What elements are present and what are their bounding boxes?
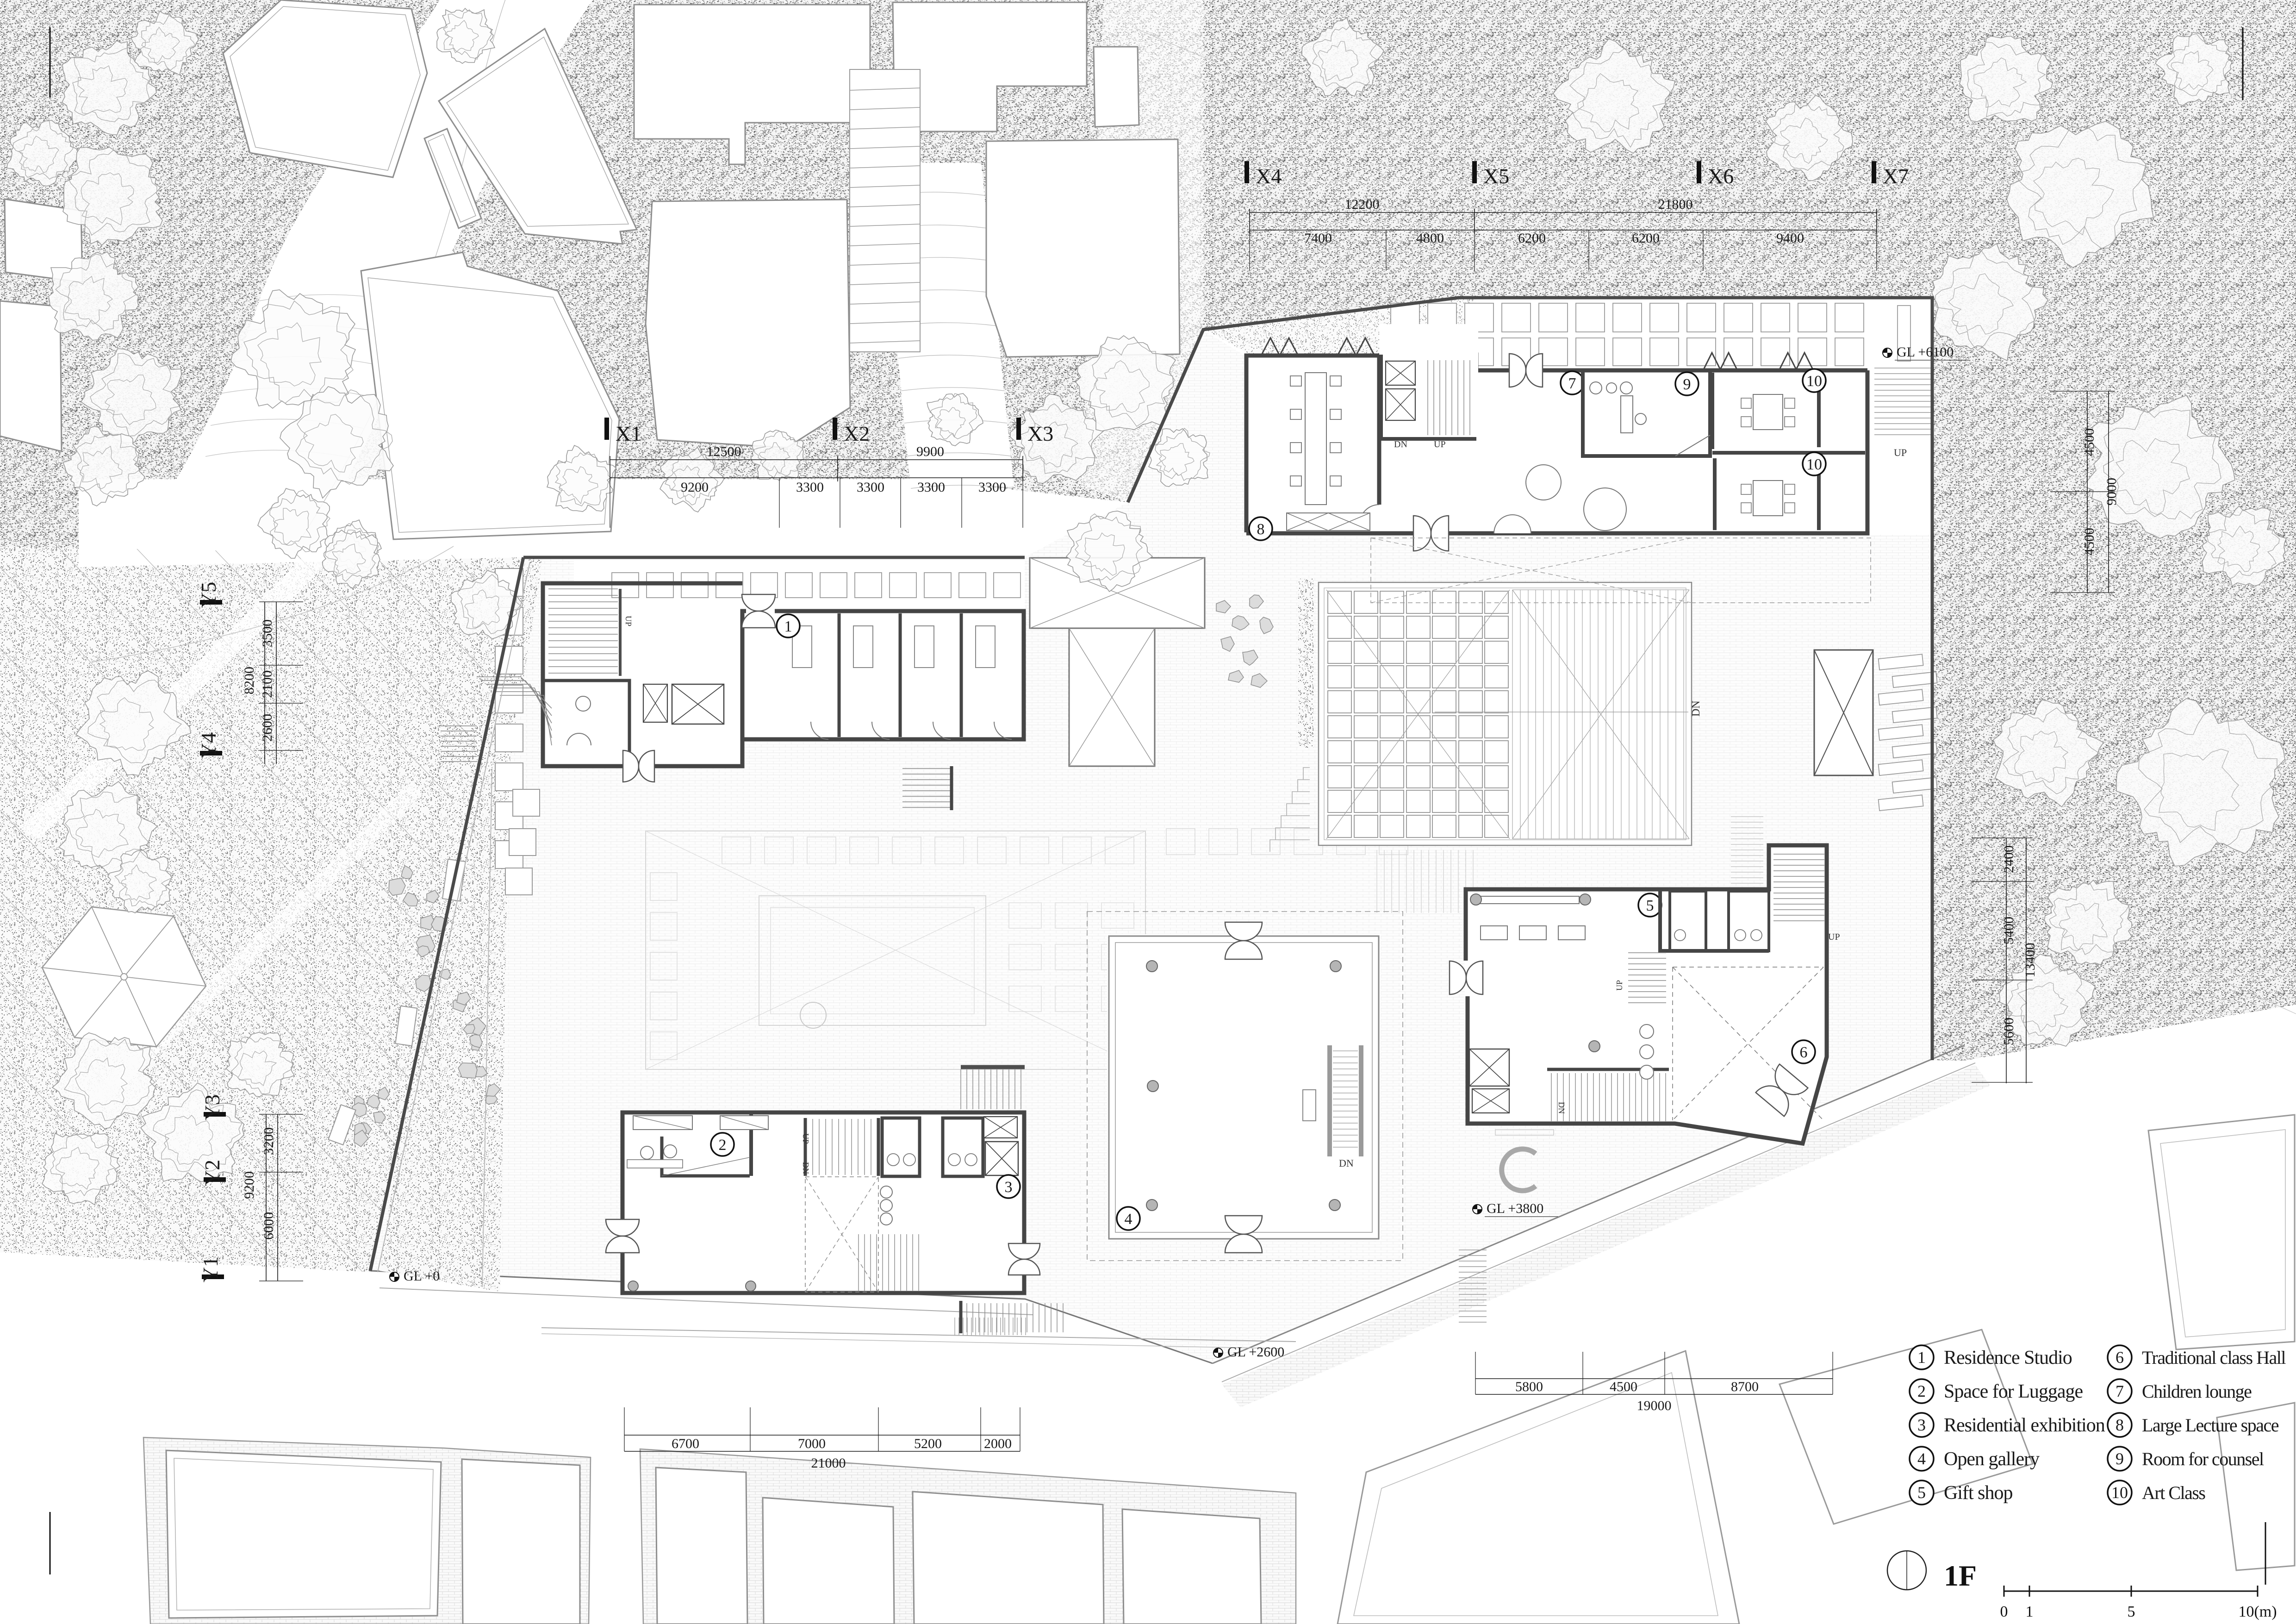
svg-text:UP: UP <box>624 616 633 626</box>
svg-text:4500: 4500 <box>2082 428 2097 456</box>
svg-text:X5: X5 <box>1483 164 1509 188</box>
svg-text:2000: 2000 <box>984 1436 1012 1451</box>
svg-text:4: 4 <box>1125 1211 1132 1228</box>
svg-text:5200: 5200 <box>914 1436 942 1451</box>
svg-text:9200: 9200 <box>681 480 709 495</box>
svg-text:6000: 6000 <box>261 1212 276 1240</box>
svg-text:8: 8 <box>2116 1416 2124 1434</box>
svg-text:Traditional class Hall: Traditional class Hall <box>2142 1347 2286 1368</box>
svg-text:UP: UP <box>1615 980 1624 991</box>
svg-text:0: 0 <box>2000 1603 2008 1620</box>
svg-text:Residence Studio: Residence Studio <box>1944 1347 2072 1368</box>
svg-text:8: 8 <box>1257 521 1265 538</box>
svg-text:1F: 1F <box>1944 1559 1977 1592</box>
svg-text:4800: 4800 <box>1416 231 1444 246</box>
svg-text:5400: 5400 <box>2001 917 2016 944</box>
svg-text:9200: 9200 <box>242 1171 257 1199</box>
svg-text:1: 1 <box>2026 1603 2034 1620</box>
svg-text:2: 2 <box>719 1137 727 1154</box>
svg-text:4500: 4500 <box>2082 528 2097 556</box>
svg-text:3300: 3300 <box>917 480 945 495</box>
svg-text:X7: X7 <box>1883 164 1909 188</box>
svg-text:UP: UP <box>1434 439 1446 450</box>
svg-text:10: 10 <box>2111 1483 2128 1502</box>
svg-text:UP: UP <box>1894 447 1907 458</box>
svg-text:9000: 9000 <box>2104 478 2119 506</box>
svg-text:3200: 3200 <box>261 1127 276 1155</box>
svg-text:DN: DN <box>1394 439 1407 450</box>
svg-text:10: 10 <box>1806 456 1822 473</box>
svg-text:Art Class: Art Class <box>2142 1482 2205 1503</box>
svg-text:6: 6 <box>1800 1044 1808 1061</box>
svg-text:4500: 4500 <box>1610 1379 1637 1394</box>
svg-text:9400: 9400 <box>1776 231 1804 246</box>
svg-text:Space for Luggage: Space for Luggage <box>1944 1381 2083 1402</box>
svg-text:3300: 3300 <box>978 480 1006 495</box>
svg-text:2100: 2100 <box>260 670 275 698</box>
svg-text:DN: DN <box>1557 1102 1566 1114</box>
svg-text:X2: X2 <box>844 422 870 445</box>
svg-text:6200: 6200 <box>1518 231 1546 246</box>
svg-text:3: 3 <box>1917 1416 1926 1434</box>
svg-text:3300: 3300 <box>857 480 884 495</box>
svg-text:5: 5 <box>1646 897 1654 914</box>
svg-text:DN: DN <box>801 1162 810 1174</box>
svg-text:12200: 12200 <box>1345 197 1380 212</box>
svg-text:21000: 21000 <box>811 1455 846 1471</box>
svg-text:6700: 6700 <box>672 1436 699 1451</box>
svg-text:1: 1 <box>1917 1348 1926 1367</box>
svg-text:Y1: Y1 <box>199 1256 222 1282</box>
svg-text:Y4: Y4 <box>197 732 220 758</box>
svg-text:X1: X1 <box>616 422 641 445</box>
svg-text:3500: 3500 <box>260 619 275 647</box>
svg-text:8200: 8200 <box>242 667 257 694</box>
svg-text:Gift shop: Gift shop <box>1944 1482 2013 1504</box>
svg-text:3300: 3300 <box>796 480 824 495</box>
svg-text:Y5: Y5 <box>197 582 220 608</box>
svg-text:10: 10 <box>1806 373 1822 390</box>
svg-text:Large Lecture space: Large Lecture space <box>2142 1415 2279 1436</box>
svg-text:X6: X6 <box>1708 164 1734 188</box>
svg-text:2600: 2600 <box>260 714 275 742</box>
svg-text:6200: 6200 <box>1632 231 1660 246</box>
svg-text:UP: UP <box>801 1133 810 1144</box>
svg-text:Children lounge: Children lounge <box>2142 1381 2252 1402</box>
svg-text:19000: 19000 <box>1637 1398 1672 1413</box>
svg-text:6: 6 <box>2116 1348 2124 1367</box>
svg-text:2: 2 <box>1917 1382 1926 1400</box>
svg-text:13400: 13400 <box>2022 943 2038 978</box>
svg-text:7: 7 <box>1568 375 1576 392</box>
svg-text:5: 5 <box>1917 1483 1926 1502</box>
svg-text:UP: UP <box>1828 932 1840 942</box>
svg-text:GL +3800: GL +3800 <box>1487 1201 1543 1216</box>
svg-text:5: 5 <box>2128 1603 2135 1620</box>
svg-text:9: 9 <box>2116 1449 2124 1468</box>
svg-text:4: 4 <box>1917 1449 1926 1468</box>
svg-text:GL +6100: GL +6100 <box>1897 344 1954 360</box>
svg-text:X4: X4 <box>1256 164 1282 188</box>
svg-text:Room for counsel: Room for counsel <box>2142 1449 2264 1469</box>
svg-text:7400: 7400 <box>1304 231 1332 246</box>
svg-text:9: 9 <box>1683 376 1691 393</box>
svg-text:9900: 9900 <box>916 444 944 459</box>
svg-text:7000: 7000 <box>798 1436 826 1451</box>
svg-text:GL +2600: GL +2600 <box>1227 1344 1284 1360</box>
svg-text:21800: 21800 <box>1658 197 1693 212</box>
svg-text:10(m): 10(m) <box>2238 1603 2277 1620</box>
svg-text:8700: 8700 <box>1731 1379 1759 1394</box>
svg-text:Y3: Y3 <box>200 1094 224 1120</box>
svg-text:Y2: Y2 <box>200 1160 224 1186</box>
svg-text:X3: X3 <box>1027 422 1053 445</box>
svg-text:5600: 5600 <box>2001 1018 2016 1045</box>
svg-text:DN: DN <box>1339 1157 1354 1169</box>
svg-text:2400: 2400 <box>2001 845 2016 873</box>
svg-text:5800: 5800 <box>1515 1379 1543 1394</box>
svg-text:7: 7 <box>2116 1382 2124 1400</box>
svg-text:Open gallery: Open gallery <box>1944 1449 2040 1470</box>
svg-text:1: 1 <box>784 618 792 635</box>
svg-text:3: 3 <box>1005 1179 1013 1196</box>
svg-text:12500: 12500 <box>707 444 741 459</box>
svg-text:Residential exhibition: Residential exhibition <box>1944 1415 2105 1436</box>
svg-text:GL +0: GL +0 <box>404 1268 440 1284</box>
svg-text:DN: DN <box>1690 700 1702 717</box>
